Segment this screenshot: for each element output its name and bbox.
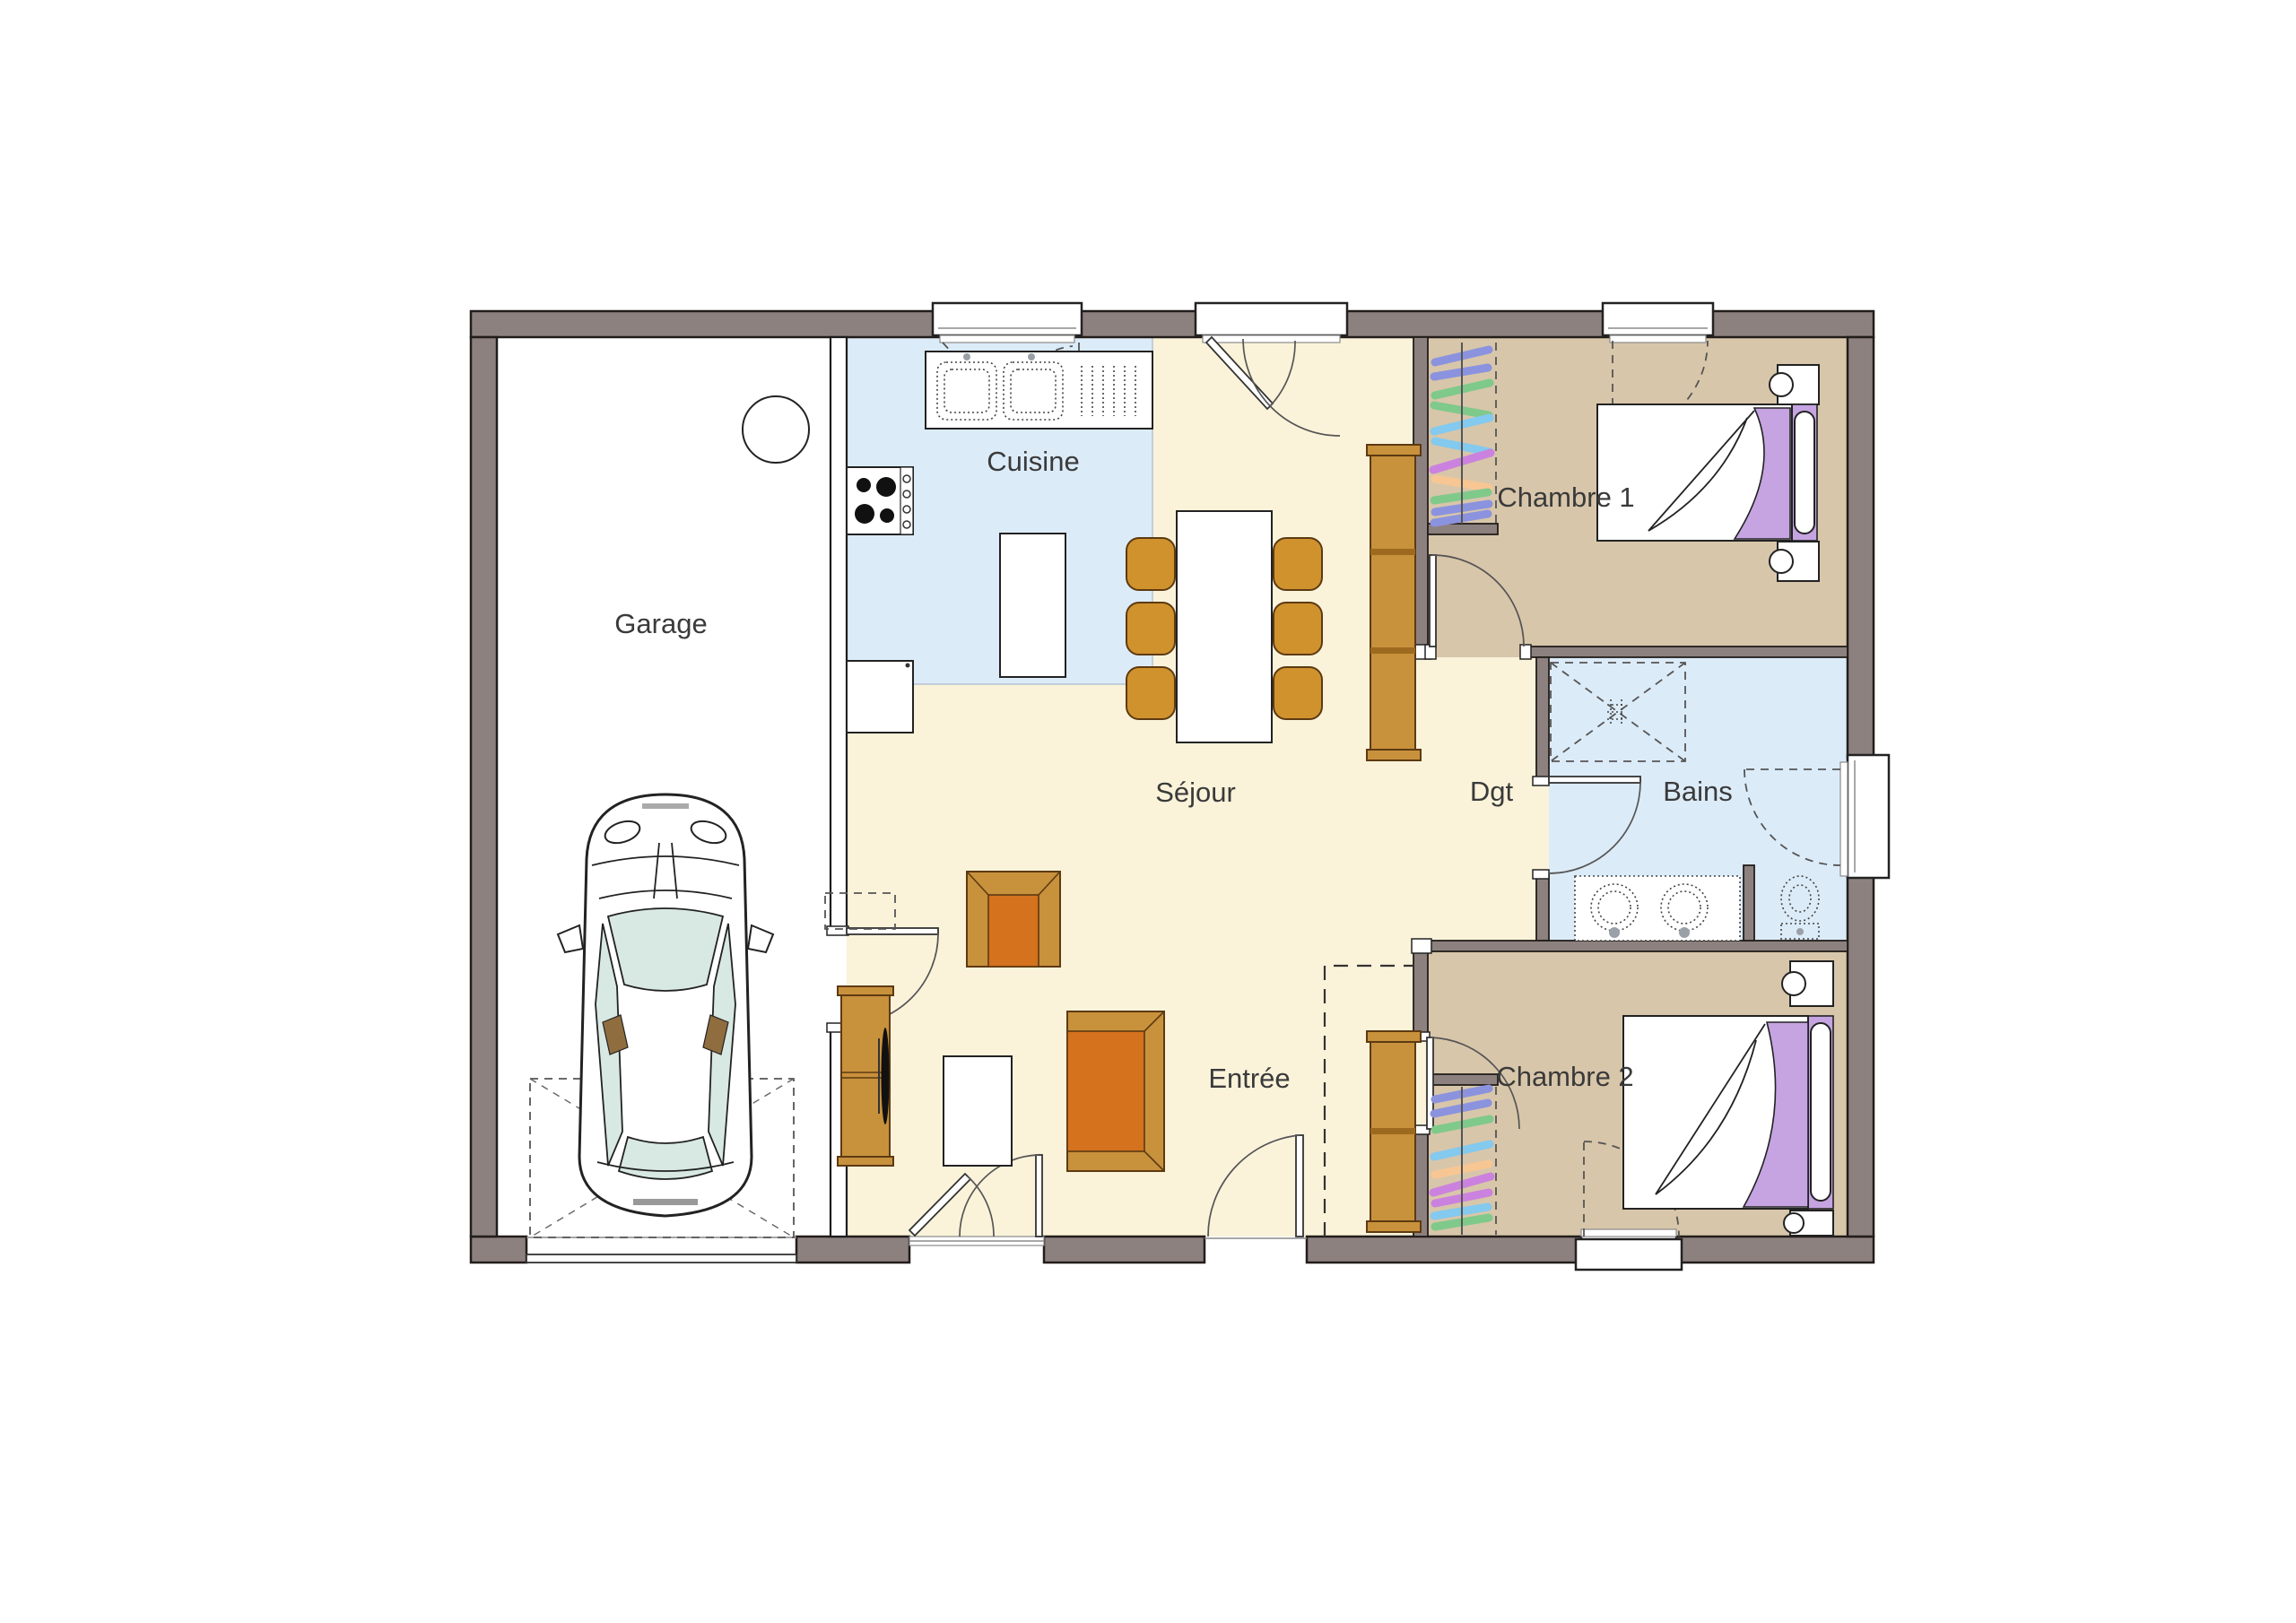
room-label-sejour: Séjour [1155, 777, 1236, 808]
door-leaf [1430, 555, 1436, 647]
dining-chair [1126, 538, 1175, 590]
bedroom1-south-wall-2 [1524, 647, 1848, 657]
dresser-cap [1367, 750, 1421, 760]
window-frame [1196, 303, 1347, 335]
room-label-chambre2: Chambre 2 [1496, 1061, 1633, 1092]
faucet-icon [1609, 927, 1620, 938]
wall-bottom-1 [471, 1237, 526, 1263]
dresser [1367, 445, 1421, 760]
door-leaf [1549, 777, 1640, 783]
vanity-counter [1575, 876, 1740, 941]
bath-west-wall-1 [1536, 657, 1549, 782]
burner [857, 478, 871, 492]
rear-bumper [633, 1199, 698, 1205]
wall-top-2 [1074, 311, 1203, 337]
room-label-dgt: Dgt [1470, 776, 1514, 807]
wardrobe2-stub [1428, 1074, 1498, 1085]
sink-counter [926, 352, 1152, 429]
wall-right-2 [1848, 876, 1874, 1237]
stove [847, 467, 913, 534]
dining-chair [1126, 603, 1175, 655]
garage-partition-upper [831, 337, 847, 933]
dining-chair [1126, 667, 1175, 719]
water-heater [743, 396, 809, 463]
window-sill [1840, 762, 1848, 876]
dresser-shelf [1370, 1128, 1415, 1134]
door-jamb [827, 926, 848, 935]
burner [876, 477, 896, 497]
dresser-body [1370, 456, 1415, 751]
garage-door-panel [526, 1254, 796, 1263]
dining-table [1177, 511, 1272, 742]
vanity [1575, 876, 1740, 941]
burner [880, 508, 894, 523]
car [558, 794, 773, 1216]
lamp-icon [1770, 373, 1793, 396]
faucet-icon [963, 353, 970, 360]
door-jamb [1520, 645, 1531, 659]
door-jamb [1533, 777, 1549, 785]
window-frame [933, 303, 1082, 335]
wall-top-3 [1340, 311, 1610, 337]
pillow [1795, 412, 1814, 534]
wall-left [471, 337, 497, 1237]
toilet-partition [1744, 865, 1754, 941]
window-frame [1603, 303, 1713, 335]
room-label-garage: Garage [614, 608, 707, 639]
faucet-icon [1028, 353, 1035, 360]
dresser-cap [1367, 445, 1421, 456]
tv-cabinet-cap [838, 986, 893, 995]
dresser-shelf [1370, 647, 1415, 654]
dresser-cap [1367, 1221, 1421, 1232]
window-leaf [1036, 1155, 1042, 1237]
bath-west-wall-2 [1536, 873, 1549, 941]
flush-button [1796, 928, 1804, 935]
wall-bottom-3 [1044, 1237, 1205, 1263]
window-sill [1610, 335, 1706, 343]
lamp-icon [1782, 972, 1805, 995]
dresser-shelf [1370, 549, 1415, 555]
wall-top-1 [471, 311, 940, 337]
room-label-chambre1: Chambre 1 [1497, 482, 1634, 513]
tv-icon [882, 1028, 890, 1124]
bedroom2-north-wall [1413, 941, 1848, 951]
window-frame [1848, 755, 1889, 878]
sofa-seat [1067, 1031, 1144, 1151]
pillow [1811, 1023, 1831, 1201]
garage-door [526, 1237, 796, 1263]
door-leaf [1296, 1135, 1303, 1237]
counter [926, 352, 1152, 429]
wall-end-cap [1412, 939, 1431, 953]
armchair-seat [988, 895, 1039, 967]
wall-right-1 [1848, 337, 1874, 759]
window-sill [1581, 1229, 1676, 1237]
coffee-table [944, 1056, 1012, 1166]
lamp-icon [1770, 550, 1793, 573]
dresser [1367, 1031, 1421, 1232]
tv-cabinet-cap [838, 1157, 893, 1166]
fridge-handle [906, 664, 910, 668]
armchair [967, 872, 1060, 967]
room-label-cuisine: Cuisine [987, 446, 1079, 477]
window-sill [1203, 335, 1340, 343]
wall-top-4 [1706, 311, 1874, 337]
room-label-entree: Entrée [1208, 1063, 1290, 1094]
kitchen-island [1000, 534, 1065, 677]
lamp-icon [1784, 1213, 1804, 1233]
dining-chair [1274, 538, 1322, 590]
rear-window [619, 1137, 712, 1179]
bedroom2-west-wall-1 [1413, 951, 1428, 1037]
fridge [847, 661, 913, 733]
knob-strip [900, 467, 913, 534]
dining-chair [1274, 603, 1322, 655]
dining-chair [1274, 667, 1322, 719]
room-label-bains: Bains [1663, 776, 1733, 807]
floor-plan-canvas: Garage Cuisine Séjour Dgt Bains Chambre … [0, 0, 2296, 1623]
wall-bottom-5 [1676, 1237, 1874, 1263]
wall-bottom-2 [796, 1237, 909, 1263]
door-jamb [1533, 870, 1549, 879]
windshield [608, 908, 723, 991]
floor-plan-drawing: Garage Cuisine Séjour Dgt Bains Chambre … [0, 0, 2296, 1623]
window-frame [1576, 1239, 1682, 1270]
burner [855, 504, 874, 524]
dresser-cap [1367, 1031, 1421, 1042]
sofa [1067, 1011, 1164, 1171]
car-front-trim [642, 803, 689, 809]
tv-cabinet [838, 986, 893, 1166]
wall-bottom-4 [1307, 1237, 1581, 1263]
window-sill [940, 335, 1074, 343]
faucet-icon [1679, 927, 1690, 938]
